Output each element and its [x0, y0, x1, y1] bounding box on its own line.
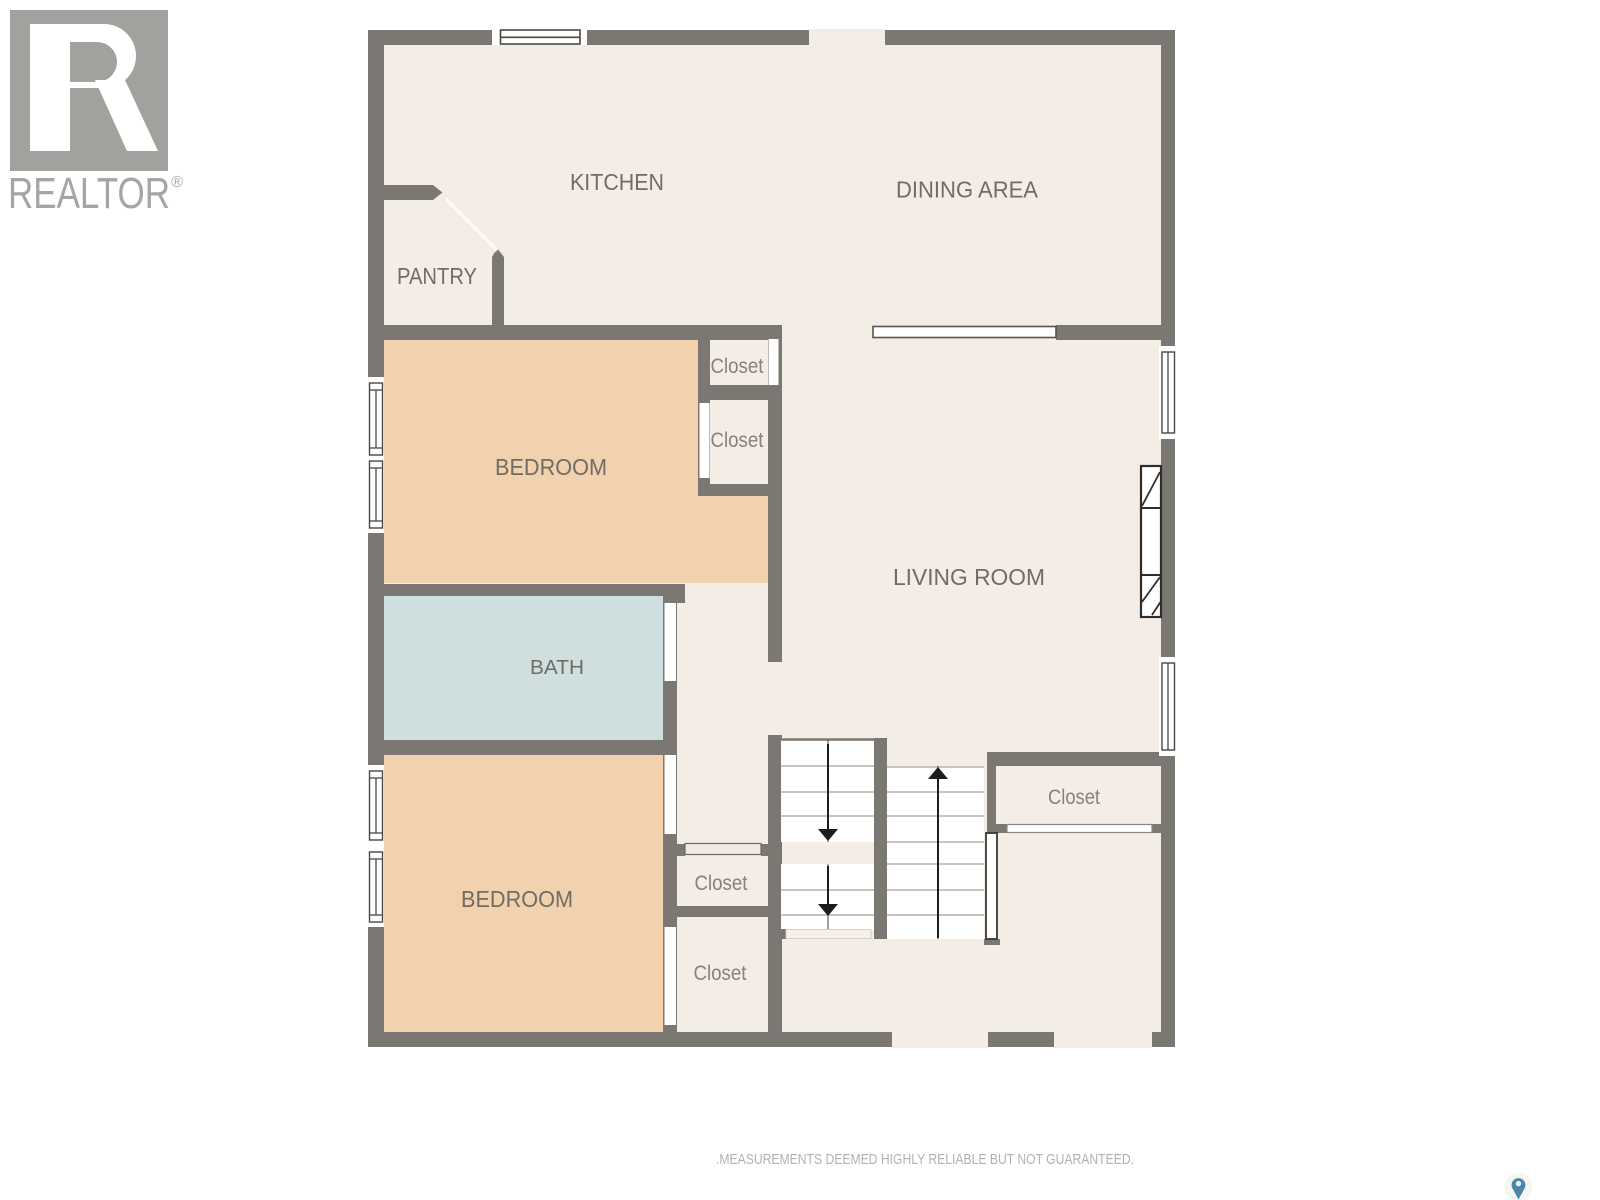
svg-text:KITCHEN: KITCHEN [570, 169, 664, 195]
svg-text:PANTRY: PANTRY [397, 263, 477, 289]
svg-text:BATH: BATH [530, 657, 584, 679]
svg-text:BEDROOM: BEDROOM [495, 454, 607, 480]
svg-text:Closet: Closet [694, 962, 747, 985]
svg-text:.MEASUREMENTS DEEMED HIGHLY RE: .MEASUREMENTS DEEMED HIGHLY RELIABLE BUT… [716, 1151, 1134, 1168]
svg-text:BEDROOM: BEDROOM [461, 886, 573, 912]
svg-text:Closet: Closet [711, 429, 764, 452]
svg-text:Closet: Closet [695, 872, 748, 895]
svg-text:Closet: Closet [711, 355, 764, 378]
svg-text:REALTOR: REALTOR [8, 169, 170, 218]
svg-text:LIVING ROOM: LIVING ROOM [893, 564, 1045, 590]
svg-text:®: ® [171, 174, 183, 191]
svg-text:DINING AREA: DINING AREA [896, 177, 1039, 203]
svg-text:Closet: Closet [1048, 786, 1100, 809]
